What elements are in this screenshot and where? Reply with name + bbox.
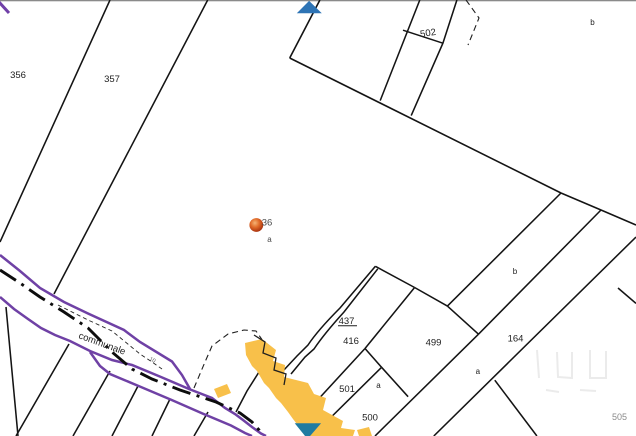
svg-text:164: 164	[508, 333, 524, 344]
svg-text:36: 36	[262, 218, 273, 229]
svg-text:416: 416	[343, 336, 359, 347]
svg-text:a: a	[376, 381, 381, 390]
svg-text:b: b	[590, 18, 595, 27]
svg-text:356: 356	[10, 70, 26, 81]
svg-text:505: 505	[612, 412, 627, 422]
svg-text:a: a	[476, 367, 481, 376]
svg-text:500: 500	[362, 413, 378, 424]
svg-text:501: 501	[339, 384, 355, 395]
svg-text:a: a	[267, 235, 272, 244]
svg-text:499: 499	[426, 338, 442, 349]
svg-text:b: b	[513, 267, 518, 276]
svg-text:357: 357	[104, 74, 120, 85]
